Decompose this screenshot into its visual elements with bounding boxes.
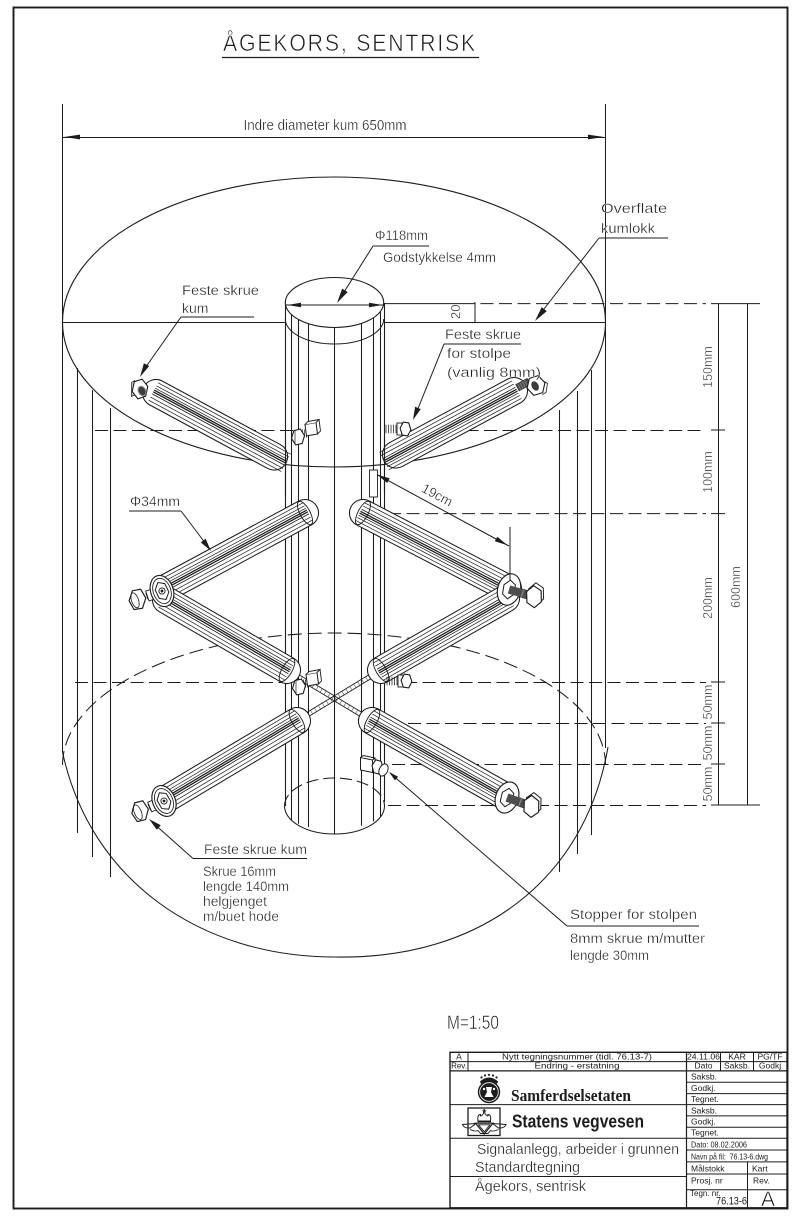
svg-text:Godkj.: Godkj. <box>691 1117 716 1127</box>
svg-text:Godkj.: Godkj. <box>691 1083 716 1093</box>
svg-text:Dato: Dato <box>695 1061 713 1071</box>
svg-text:Tegnet.: Tegnet. <box>691 1128 719 1138</box>
svg-text:50mm: 50mm <box>701 767 715 802</box>
svg-text:Saksb.: Saksb. <box>691 1072 717 1082</box>
svg-text:Godstykkelse 4mm: Godstykkelse 4mm <box>383 249 496 265</box>
svg-text:Godkj: Godkj <box>759 1061 781 1071</box>
svg-text:Statens vegvesen: Statens vegvesen <box>512 1111 644 1132</box>
svg-text:76.13-6: 76.13-6 <box>716 1196 747 1208</box>
svg-text:8mm skrue m/mutter: 8mm skrue m/mutter <box>570 931 706 946</box>
svg-text:50mm: 50mm <box>701 685 715 720</box>
svg-text:Feste skrue: Feste skrue <box>445 327 521 342</box>
svg-text:Rev.: Rev. <box>451 1062 467 1071</box>
svg-text:20: 20 <box>448 305 463 319</box>
svg-text:Signalanlegg, arbeider i grunn: Signalanlegg, arbeider i grunnen <box>477 1141 679 1158</box>
svg-text:Φ118mm: Φ118mm <box>375 227 428 243</box>
svg-text:lengde 30mm: lengde 30mm <box>570 948 649 963</box>
svg-text:150mm: 150mm <box>701 346 715 388</box>
svg-text:Feste skrue: Feste skrue <box>182 282 259 298</box>
svg-text:Ågekors, sentrisk: Ågekors, sentrisk <box>475 1178 586 1195</box>
svg-text:A: A <box>761 1188 775 1211</box>
svg-text:Navn på fil: 76.13-6.dwg: Navn på fil: 76.13-6.dwg <box>691 1151 768 1161</box>
svg-text:Kart: Kart <box>752 1163 768 1173</box>
svg-text:Indre diameter kum 650mm: Indre diameter kum 650mm <box>244 118 407 134</box>
svg-text:Feste skrue kum: Feste skrue kum <box>204 841 307 857</box>
svg-text:ÅGEKORS, SENTRISK: ÅGEKORS, SENTRISK <box>223 29 477 57</box>
svg-text:(vanlig 8mm): (vanlig 8mm) <box>447 365 541 380</box>
svg-text:Stopper for stolpen: Stopper for stolpen <box>570 907 697 922</box>
svg-text:for stolpe: for stolpe <box>447 346 511 361</box>
svg-text:Rev.: Rev. <box>753 1176 770 1186</box>
svg-text:Endring - erstatning: Endring - erstatning <box>535 1061 620 1071</box>
svg-text:Skrue 16mm: Skrue 16mm <box>203 864 276 879</box>
svg-text:50mm: 50mm <box>701 726 715 761</box>
svg-text:helgjenget: helgjenget <box>203 894 267 909</box>
svg-text:Saksb.: Saksb. <box>724 1061 750 1071</box>
svg-text:100mm: 100mm <box>701 451 715 493</box>
svg-text:Standardtegning: Standardtegning <box>475 1159 580 1176</box>
svg-text:A: A <box>456 1052 462 1062</box>
svg-text:Dato: 08.02.2006: Dato: 08.02.2006 <box>691 1140 747 1150</box>
svg-text:600mm: 600mm <box>729 566 743 608</box>
svg-text:200mm: 200mm <box>701 577 715 619</box>
svg-text:m/buet hode: m/buet hode <box>203 909 279 924</box>
svg-text:Tegnet.: Tegnet. <box>691 1094 719 1104</box>
svg-text:M=1:50: M=1:50 <box>447 1013 499 1034</box>
svg-text:Saksb.: Saksb. <box>691 1105 717 1115</box>
svg-text:Samferdselsetaten: Samferdselsetaten <box>511 1086 631 1105</box>
svg-text:kumlokk: kumlokk <box>601 220 656 236</box>
svg-text:Overflate: Overflate <box>601 200 667 216</box>
svg-text:Prosj. nr: Prosj. nr <box>691 1176 723 1186</box>
svg-text:kum: kum <box>182 300 208 316</box>
svg-text:Φ34mm: Φ34mm <box>130 493 180 509</box>
svg-text:lengde 140mm: lengde 140mm <box>203 879 289 894</box>
svg-text:Målstokk: Målstokk <box>691 1163 725 1173</box>
